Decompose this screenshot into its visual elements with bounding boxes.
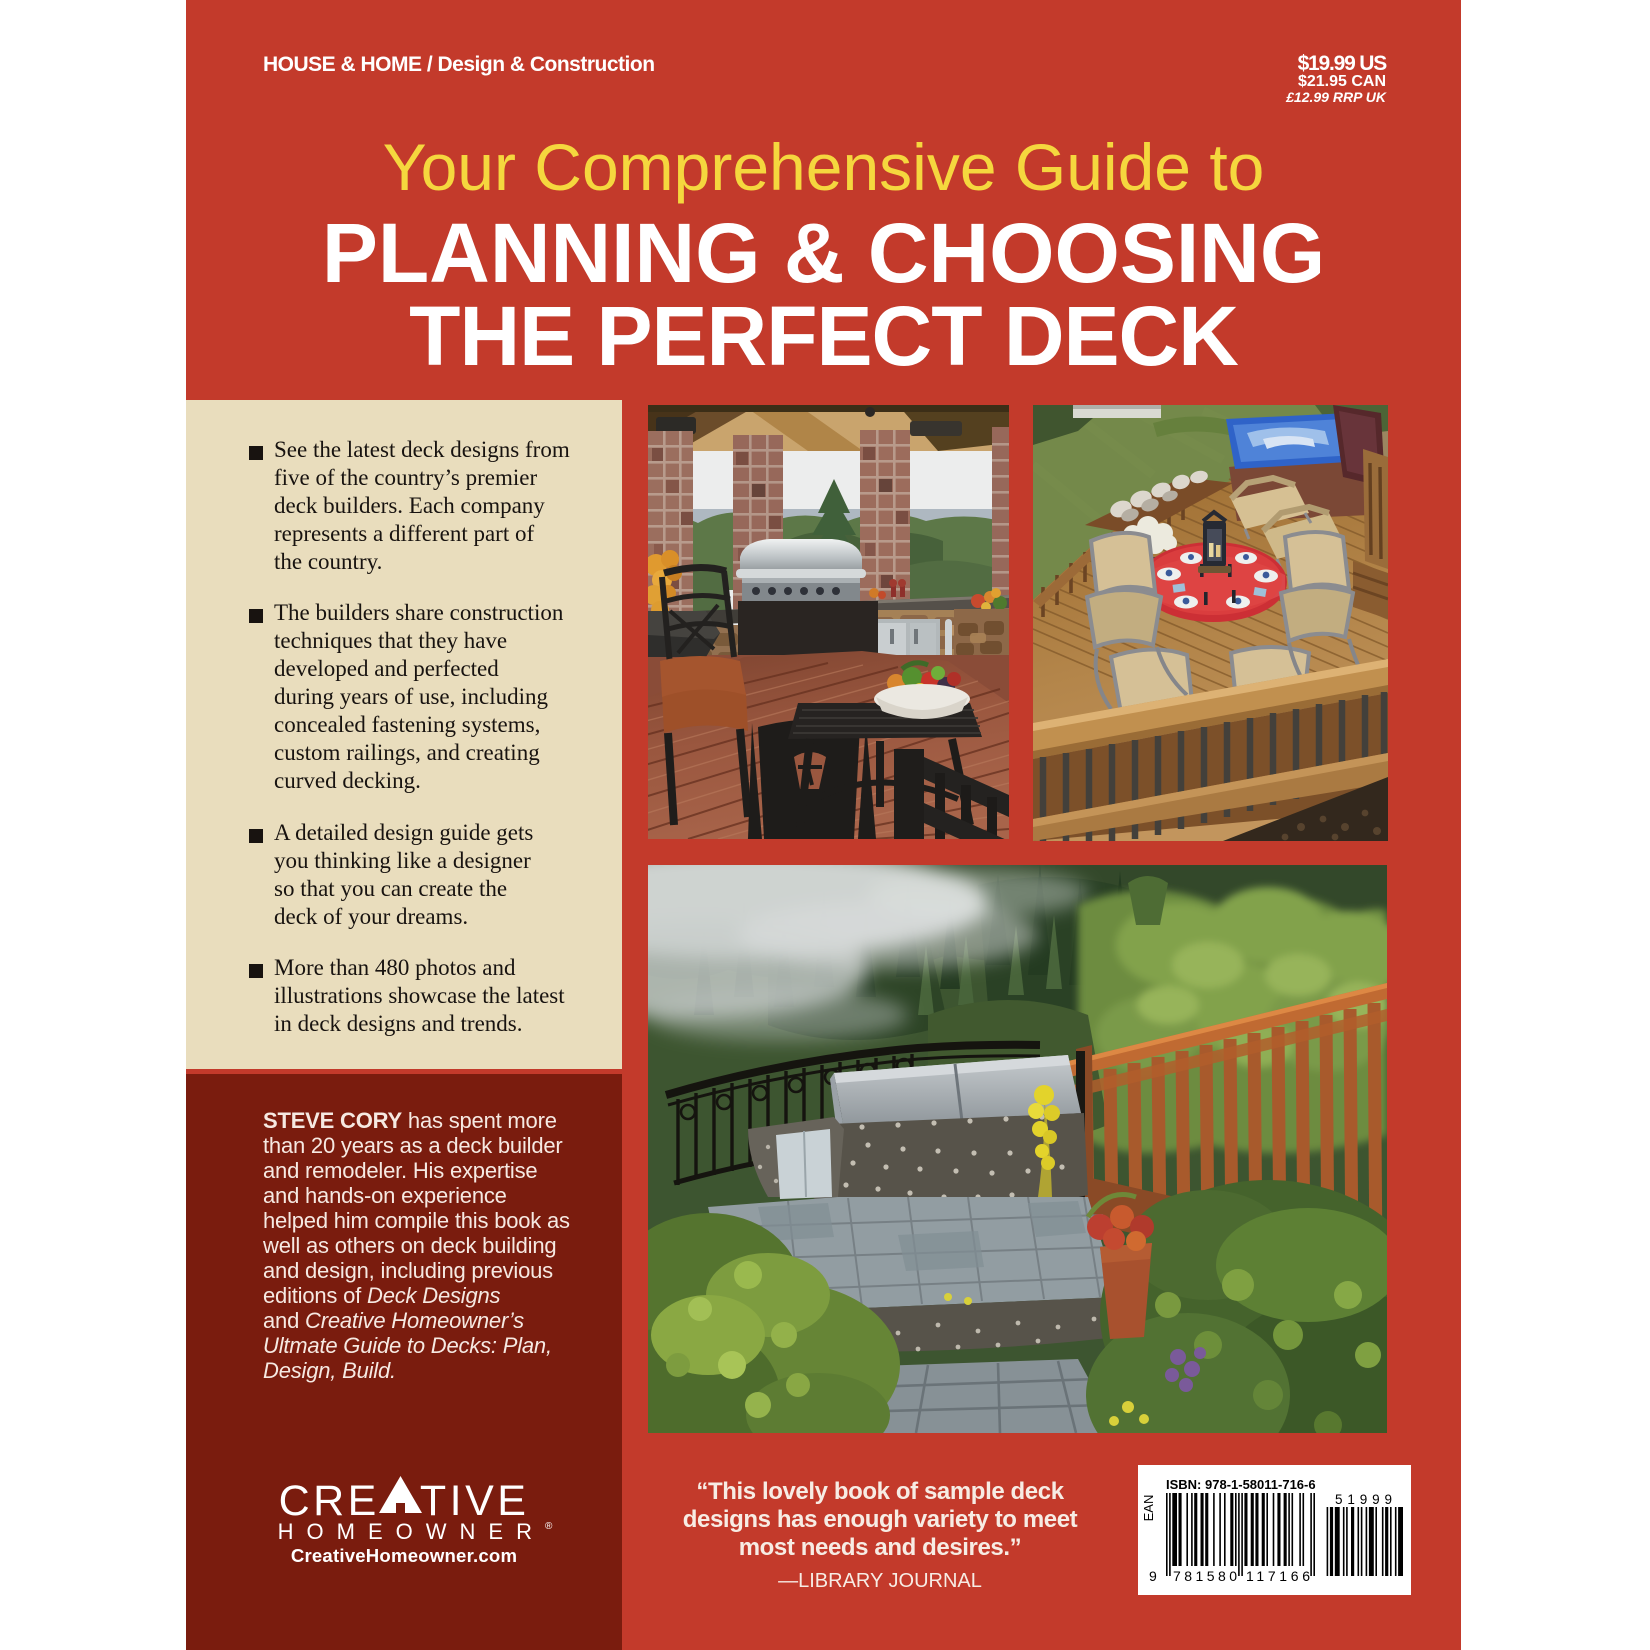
- svg-text:117166: 117166: [1246, 1568, 1310, 1584]
- svg-text:9: 9: [1149, 1568, 1157, 1584]
- svg-text:781580: 781580: [1173, 1568, 1237, 1584]
- svg-text:51999: 51999: [1335, 1492, 1395, 1507]
